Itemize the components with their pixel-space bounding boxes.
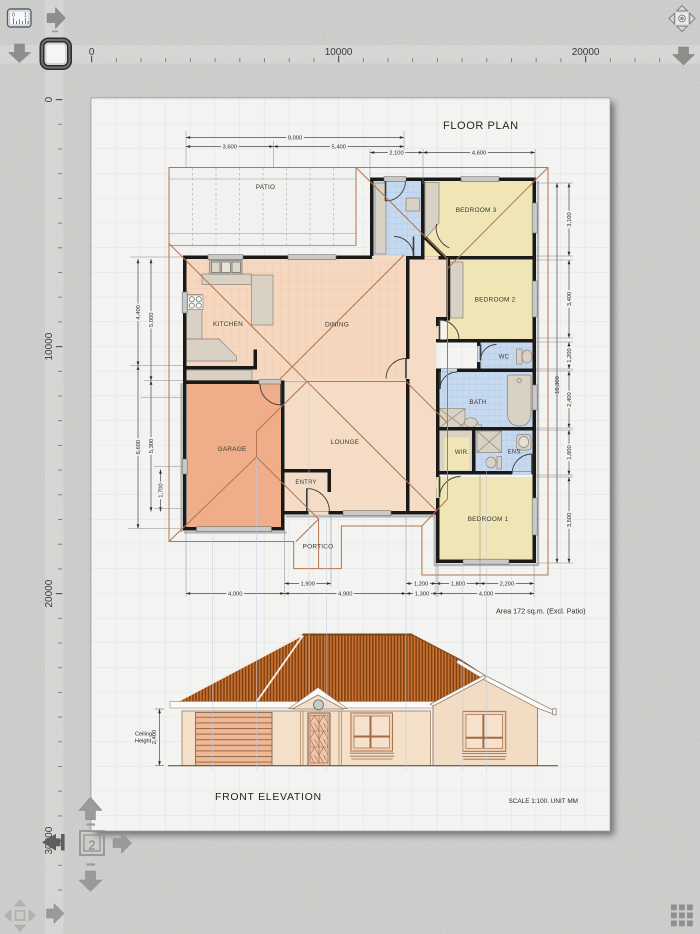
svg-text:9,000: 9,000 [288, 136, 303, 142]
svg-text:20000: 20000 [44, 579, 55, 607]
svg-text:2: 2 [89, 839, 96, 853]
svg-text:4,400: 4,400 [136, 305, 142, 320]
svg-text:1,700: 1,700 [159, 483, 165, 498]
svg-text:5,400: 5,400 [331, 145, 346, 151]
svg-text:KITCHEN: KITCHEN [213, 321, 243, 328]
svg-text:1,300: 1,300 [415, 592, 430, 598]
svg-text:1,200: 1,200 [567, 348, 573, 363]
svg-text:1,800: 1,800 [567, 445, 573, 460]
svg-text:ENS.: ENS. [508, 450, 523, 456]
svg-text:WIR.: WIR. [455, 450, 469, 456]
svg-text:2,400: 2,400 [567, 392, 573, 407]
svg-text:2,400: 2,400 [152, 730, 158, 745]
svg-text:1,900: 1,900 [300, 582, 315, 588]
svg-text:10000: 10000 [44, 332, 55, 360]
svg-text:3,500: 3,500 [567, 513, 573, 528]
svg-text:4,900: 4,900 [338, 592, 353, 598]
svg-text:PATIO: PATIO [256, 184, 276, 191]
svg-text:SCALE 1:100. UNIT MM: SCALE 1:100. UNIT MM [509, 798, 579, 805]
svg-text:0: 0 [44, 96, 55, 102]
svg-text:2,200: 2,200 [500, 582, 515, 588]
svg-text:1,200: 1,200 [414, 582, 429, 588]
svg-text:GARAGE: GARAGE [217, 446, 246, 453]
svg-text:Area 172 sq.m. (Excl. Patio): Area 172 sq.m. (Excl. Patio) [496, 607, 585, 616]
svg-text:5,300: 5,300 [149, 439, 155, 454]
svg-text:3,400: 3,400 [567, 292, 573, 307]
svg-text:2,100: 2,100 [389, 151, 404, 157]
svg-text:3,100: 3,100 [567, 212, 573, 227]
svg-text:5,000: 5,000 [149, 312, 155, 327]
svg-text:WC: WC [499, 355, 510, 361]
svg-text:LOUNGE: LOUNGE [331, 439, 360, 446]
svg-text:Ceiling: Ceiling [135, 732, 152, 738]
svg-text:1: 1 [24, 13, 27, 19]
svg-text:DINING: DINING [325, 322, 349, 329]
svg-text:BATH: BATH [469, 399, 486, 406]
svg-text:3,600: 3,600 [222, 145, 237, 151]
svg-text:PORTICO: PORTICO [303, 544, 334, 551]
svg-text:10,300: 10,300 [555, 376, 561, 394]
svg-text:FLOOR PLAN: FLOOR PLAN [443, 120, 519, 132]
svg-text:BEDROOM 2: BEDROOM 2 [475, 297, 516, 304]
svg-text:BEDROOM 1: BEDROOM 1 [468, 516, 509, 523]
svg-text:6,600: 6,600 [136, 440, 142, 455]
svg-text:20000: 20000 [572, 47, 600, 58]
svg-text:4,600: 4,600 [472, 151, 487, 157]
svg-text:4,000: 4,000 [228, 592, 243, 598]
svg-text:FRONT ELEVATION: FRONT ELEVATION [215, 791, 322, 803]
svg-text:0: 0 [12, 13, 15, 19]
svg-text:0: 0 [89, 47, 95, 58]
svg-text:ENTRY: ENTRY [295, 480, 316, 486]
svg-text:Height: Height [135, 739, 152, 745]
svg-text:BEDROOM 3: BEDROOM 3 [456, 207, 497, 214]
svg-text:4,000: 4,000 [479, 592, 494, 598]
svg-text:10000: 10000 [325, 47, 353, 58]
